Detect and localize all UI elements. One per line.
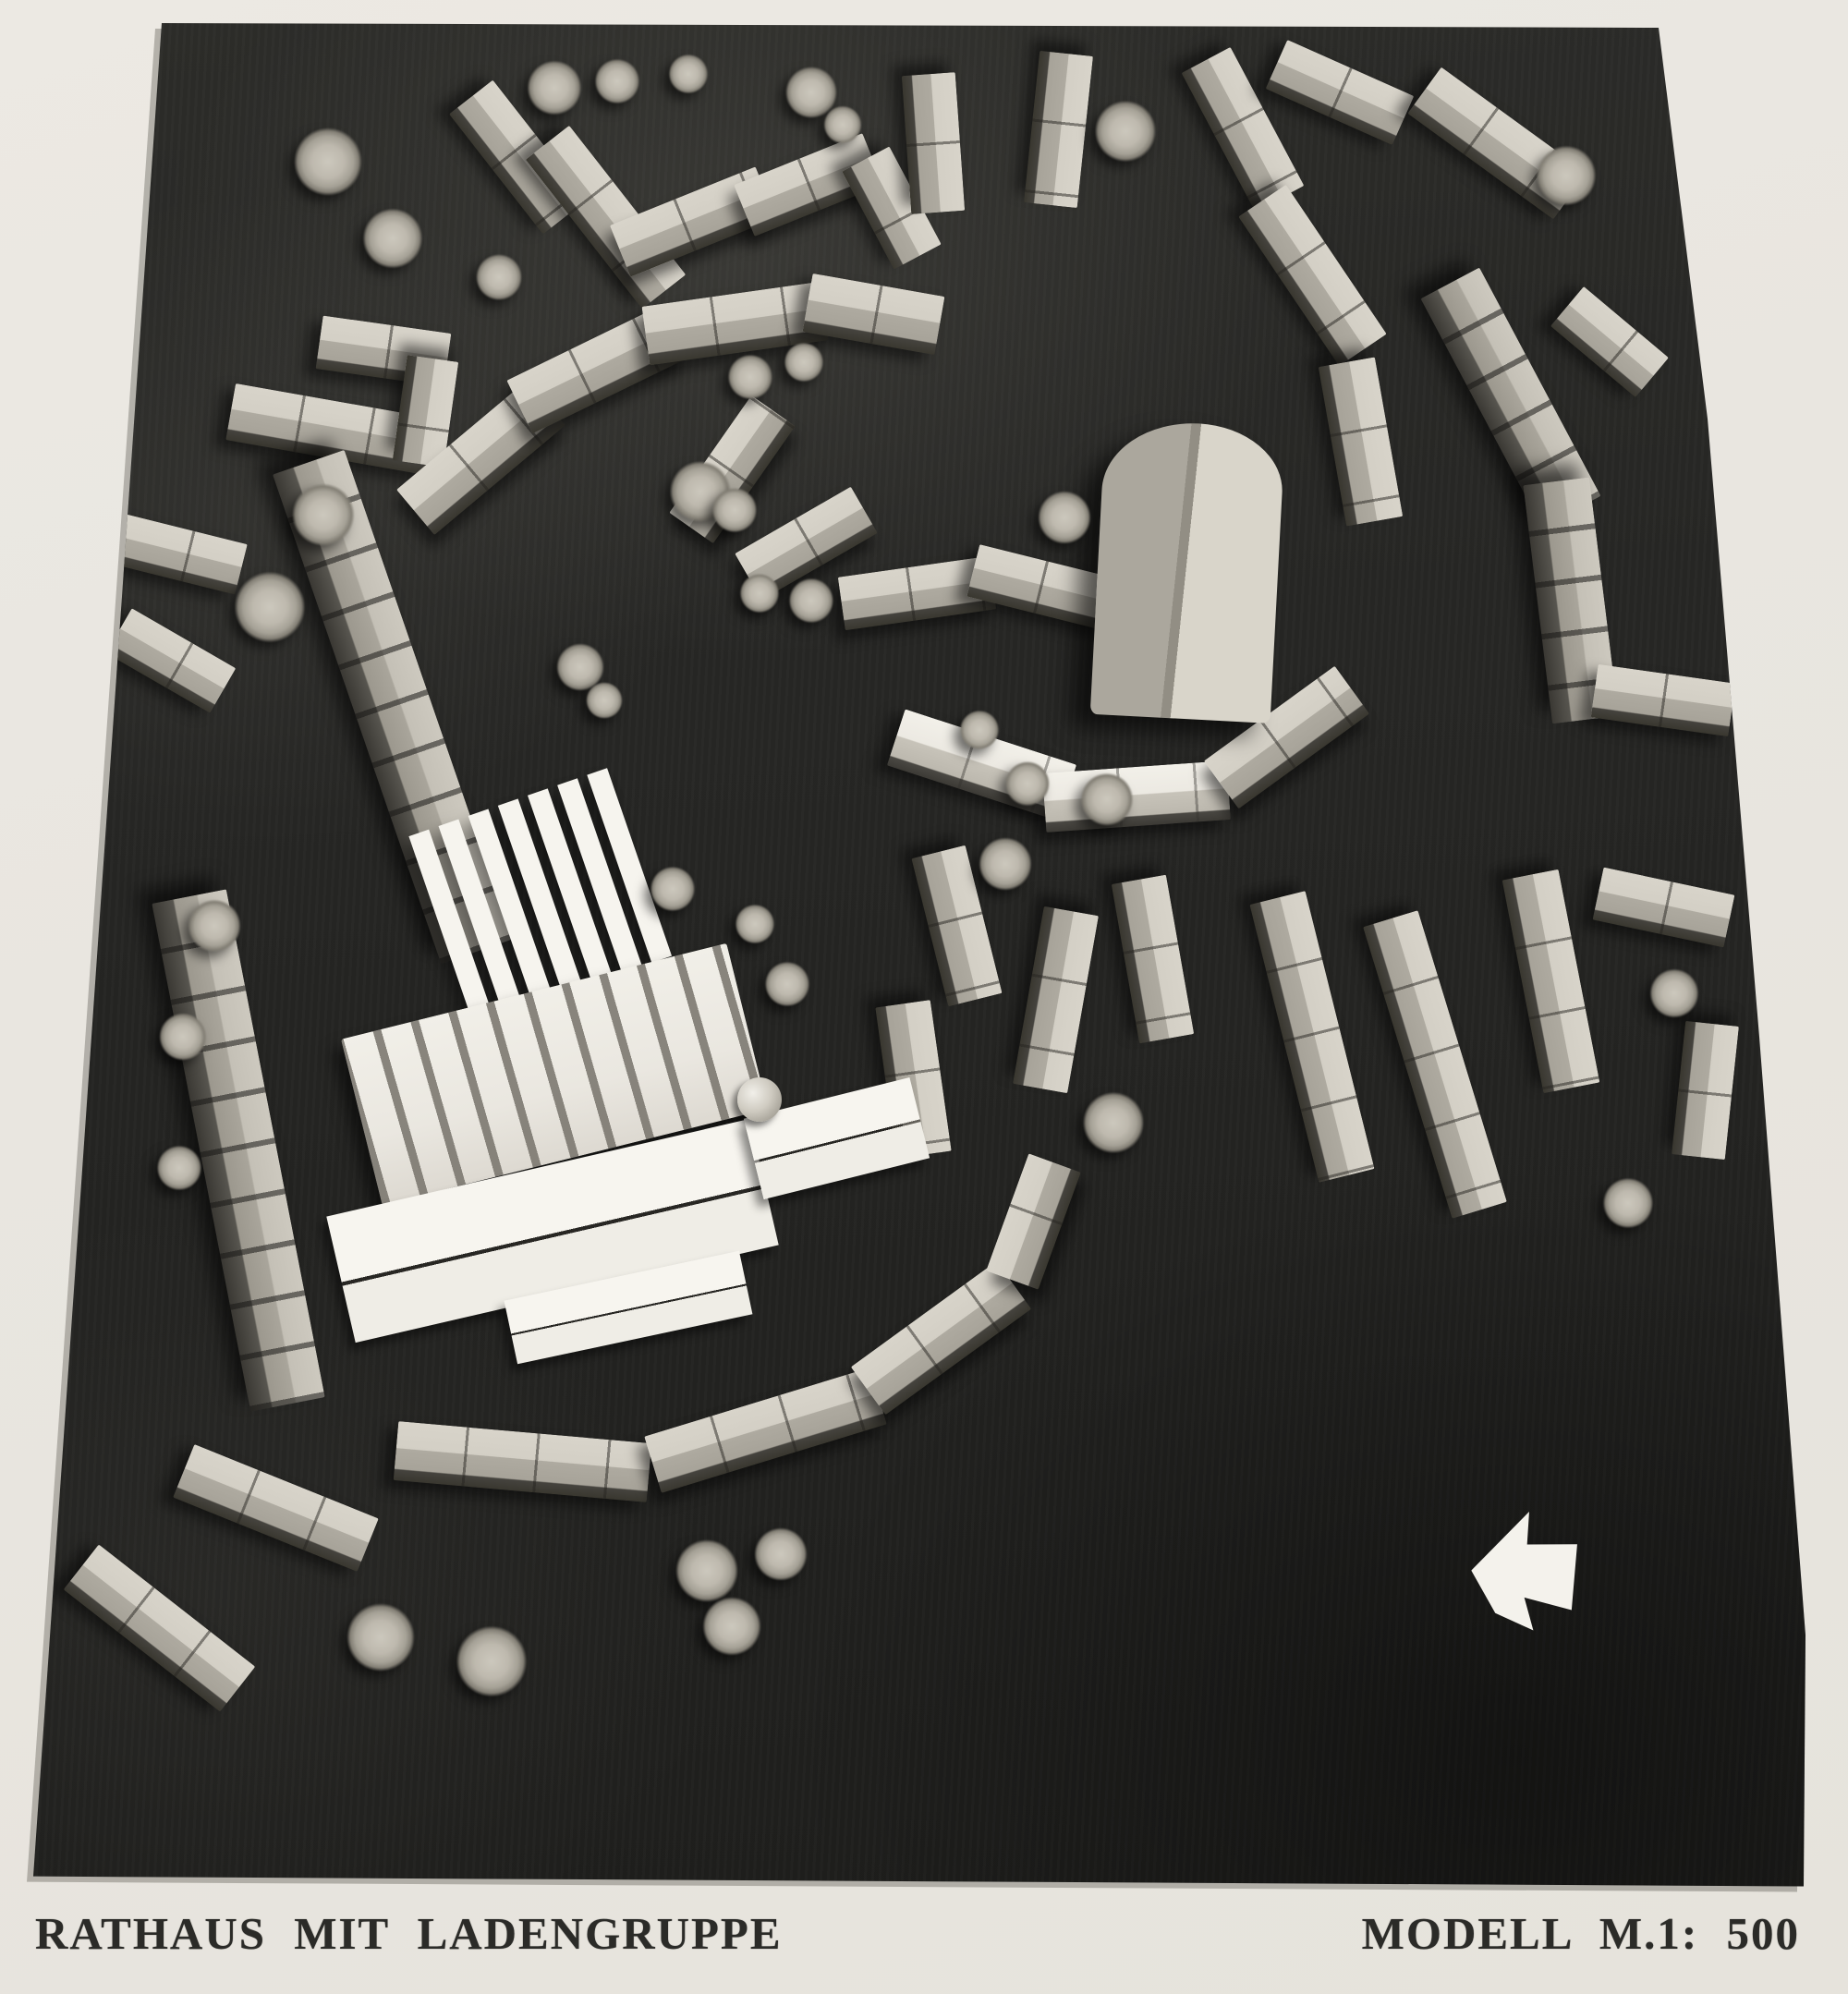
building-row bbox=[802, 274, 944, 355]
building-row bbox=[902, 72, 965, 214]
building-row bbox=[1591, 664, 1736, 736]
tree bbox=[587, 51, 648, 112]
tree bbox=[969, 828, 1041, 900]
caption-left: RATHAUS MIT LADENGRUPPE bbox=[35, 1907, 783, 1960]
tree bbox=[468, 246, 530, 309]
tree bbox=[579, 675, 629, 725]
tree bbox=[282, 116, 374, 208]
tree bbox=[149, 1137, 210, 1198]
tree bbox=[222, 559, 318, 655]
building-row bbox=[1266, 40, 1415, 145]
building-row bbox=[106, 608, 237, 712]
tree bbox=[745, 1518, 817, 1590]
tree bbox=[444, 1613, 540, 1709]
caption: RATHAUS MIT LADENGRUPPE MODELL M.1: 500 bbox=[0, 1896, 1848, 1970]
tree bbox=[720, 347, 781, 407]
tree bbox=[1641, 960, 1708, 1027]
tree bbox=[757, 954, 818, 1015]
tree bbox=[517, 51, 591, 125]
tree bbox=[728, 897, 782, 951]
building-row bbox=[63, 1544, 255, 1711]
building-row bbox=[850, 1261, 1030, 1415]
tree bbox=[281, 472, 366, 557]
model-photograph: RATHAUS MIT LADENGRUPPE MODELL M.1: 500 bbox=[0, 0, 1848, 1994]
building-row bbox=[986, 1153, 1081, 1289]
building-row bbox=[1363, 910, 1507, 1219]
building-row bbox=[1111, 875, 1193, 1044]
building-row bbox=[1238, 185, 1386, 366]
north-arrow-marker bbox=[1465, 1503, 1616, 1642]
building-row bbox=[644, 1368, 887, 1493]
tree bbox=[704, 480, 765, 541]
tree bbox=[1028, 481, 1100, 553]
tree bbox=[642, 858, 703, 919]
tree bbox=[1594, 1169, 1662, 1237]
stair-cylinder bbox=[737, 1077, 782, 1122]
building-row bbox=[173, 1444, 379, 1572]
tree bbox=[777, 335, 831, 389]
tree bbox=[953, 703, 1006, 757]
tree bbox=[662, 47, 715, 101]
church-building bbox=[1089, 419, 1284, 723]
building-row bbox=[1024, 51, 1093, 208]
building-row bbox=[1318, 357, 1402, 526]
tree bbox=[781, 570, 842, 631]
model-scene bbox=[0, 0, 1848, 1994]
tree bbox=[997, 753, 1058, 814]
building-row bbox=[1672, 1021, 1739, 1160]
tree bbox=[692, 1587, 772, 1666]
tree bbox=[733, 566, 786, 620]
tree bbox=[352, 198, 433, 279]
tree bbox=[151, 1004, 215, 1069]
tree bbox=[334, 1591, 427, 1684]
building-row bbox=[1592, 868, 1734, 948]
tree bbox=[1072, 1081, 1155, 1164]
building-row bbox=[1249, 891, 1374, 1183]
caption-right: MODELL M.1: 500 bbox=[1362, 1907, 1800, 1960]
building-row bbox=[1550, 286, 1669, 397]
tree bbox=[817, 99, 869, 151]
building-row bbox=[1013, 906, 1099, 1093]
building-row bbox=[393, 1421, 651, 1502]
building-row bbox=[1501, 869, 1599, 1094]
tree bbox=[1084, 90, 1167, 173]
